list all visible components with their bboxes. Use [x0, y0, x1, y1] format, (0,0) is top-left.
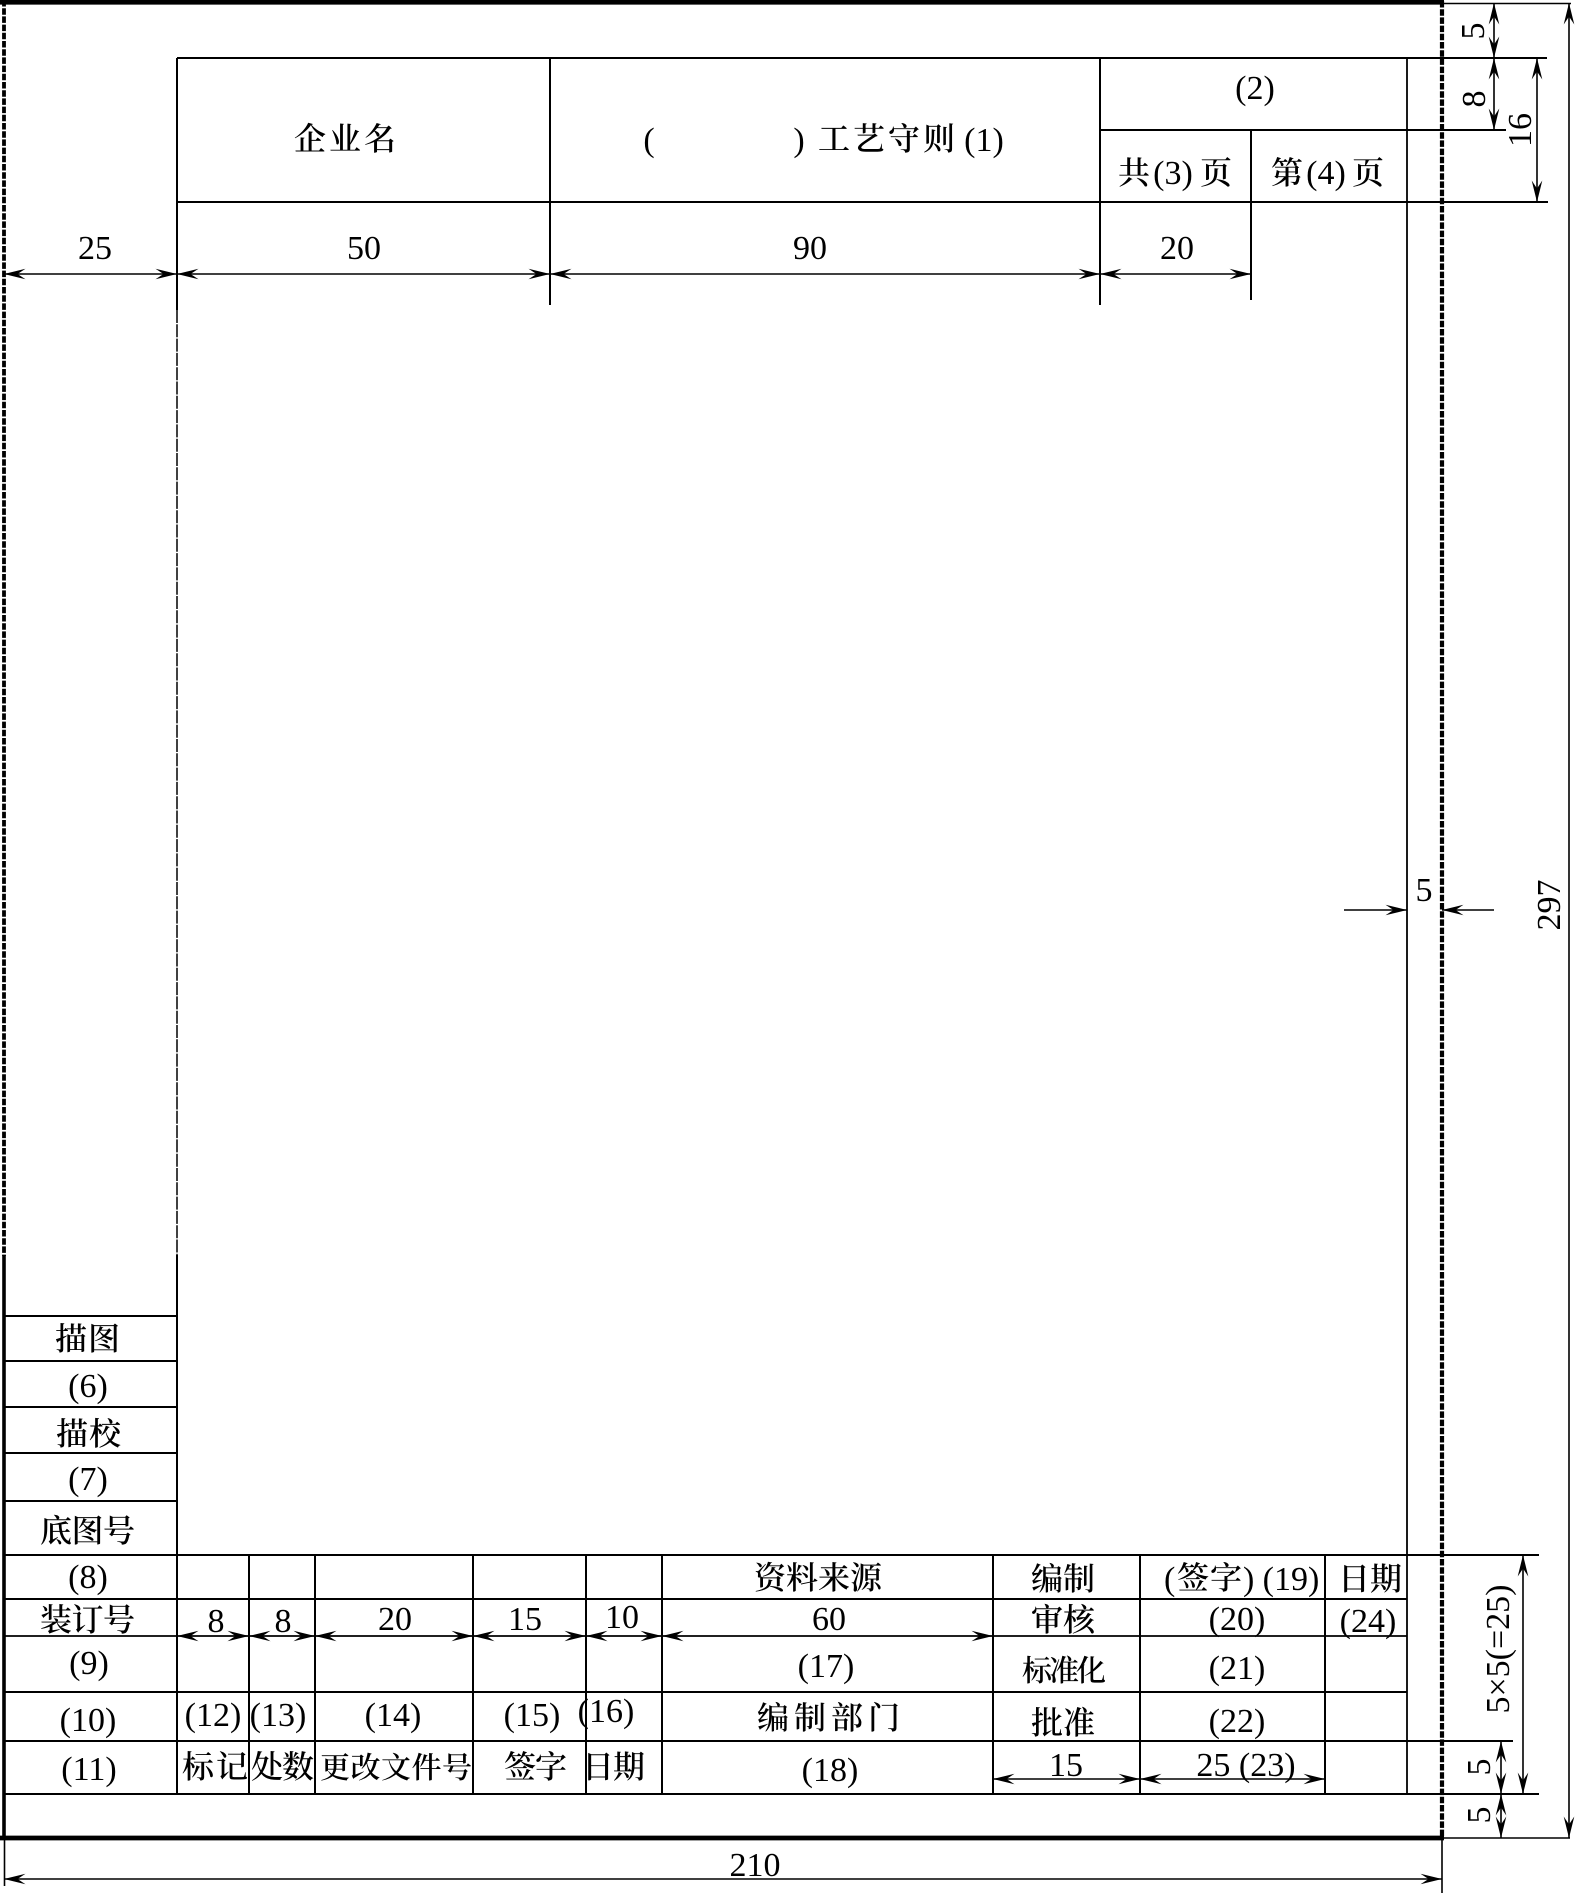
svg-text:(8): (8): [68, 1559, 108, 1596]
svg-text:10: 10: [605, 1599, 639, 1636]
svg-text:5: 5: [1461, 1759, 1498, 1776]
svg-text:(7): (7): [68, 1461, 108, 1498]
svg-text:(13): (13): [250, 1697, 307, 1734]
svg-text:20: 20: [1160, 230, 1194, 267]
svg-text:50: 50: [347, 230, 381, 267]
svg-text:5×5(=25): 5×5(=25): [1480, 1585, 1517, 1714]
svg-text:25: 25: [78, 230, 112, 267]
svg-text:(6): (6): [68, 1368, 108, 1405]
svg-text:(9): (9): [69, 1645, 109, 1682]
svg-text:(: (: [1164, 1561, 1175, 1598]
svg-text:(1): (1): [964, 122, 1004, 159]
svg-text:(17): (17): [798, 1648, 855, 1685]
svg-text:(18): (18): [802, 1752, 859, 1789]
svg-text:(20): (20): [1209, 1601, 1266, 1638]
svg-text:(12): (12): [185, 1697, 242, 1734]
svg-text:(14): (14): [365, 1697, 422, 1734]
svg-text:20: 20: [378, 1601, 412, 1638]
svg-text:297: 297: [1531, 880, 1568, 931]
svg-text:(3): (3): [1153, 155, 1193, 192]
svg-text:8: 8: [275, 1603, 292, 1640]
svg-text:(19): (19): [1263, 1561, 1320, 1598]
svg-text:8: 8: [208, 1603, 225, 1640]
svg-text:90: 90: [793, 230, 827, 267]
svg-text:(24): (24): [1340, 1603, 1397, 1640]
svg-text:5: 5: [1416, 872, 1433, 909]
svg-text:25 (23): 25 (23): [1196, 1747, 1295, 1784]
svg-text:5: 5: [1455, 23, 1492, 40]
svg-text:(: (: [643, 122, 654, 159]
svg-text:(11): (11): [61, 1751, 116, 1788]
svg-text:): ): [1243, 1561, 1254, 1598]
svg-text:15: 15: [508, 1601, 542, 1638]
svg-text:5: 5: [1461, 1807, 1498, 1824]
svg-text:(16): (16): [578, 1693, 635, 1730]
svg-text:(22): (22): [1209, 1703, 1266, 1740]
svg-text:60: 60: [812, 1601, 846, 1638]
svg-text:8: 8: [1456, 91, 1493, 108]
svg-text:(21): (21): [1209, 1650, 1266, 1687]
svg-text:(15): (15): [504, 1697, 561, 1734]
svg-text:(4): (4): [1306, 155, 1346, 192]
svg-text:(10): (10): [60, 1702, 117, 1739]
svg-text:16: 16: [1502, 113, 1539, 147]
svg-text:(2): (2): [1235, 70, 1275, 107]
svg-text:15: 15: [1049, 1747, 1083, 1784]
svg-text:): ): [793, 122, 804, 159]
svg-text:210: 210: [730, 1847, 781, 1884]
